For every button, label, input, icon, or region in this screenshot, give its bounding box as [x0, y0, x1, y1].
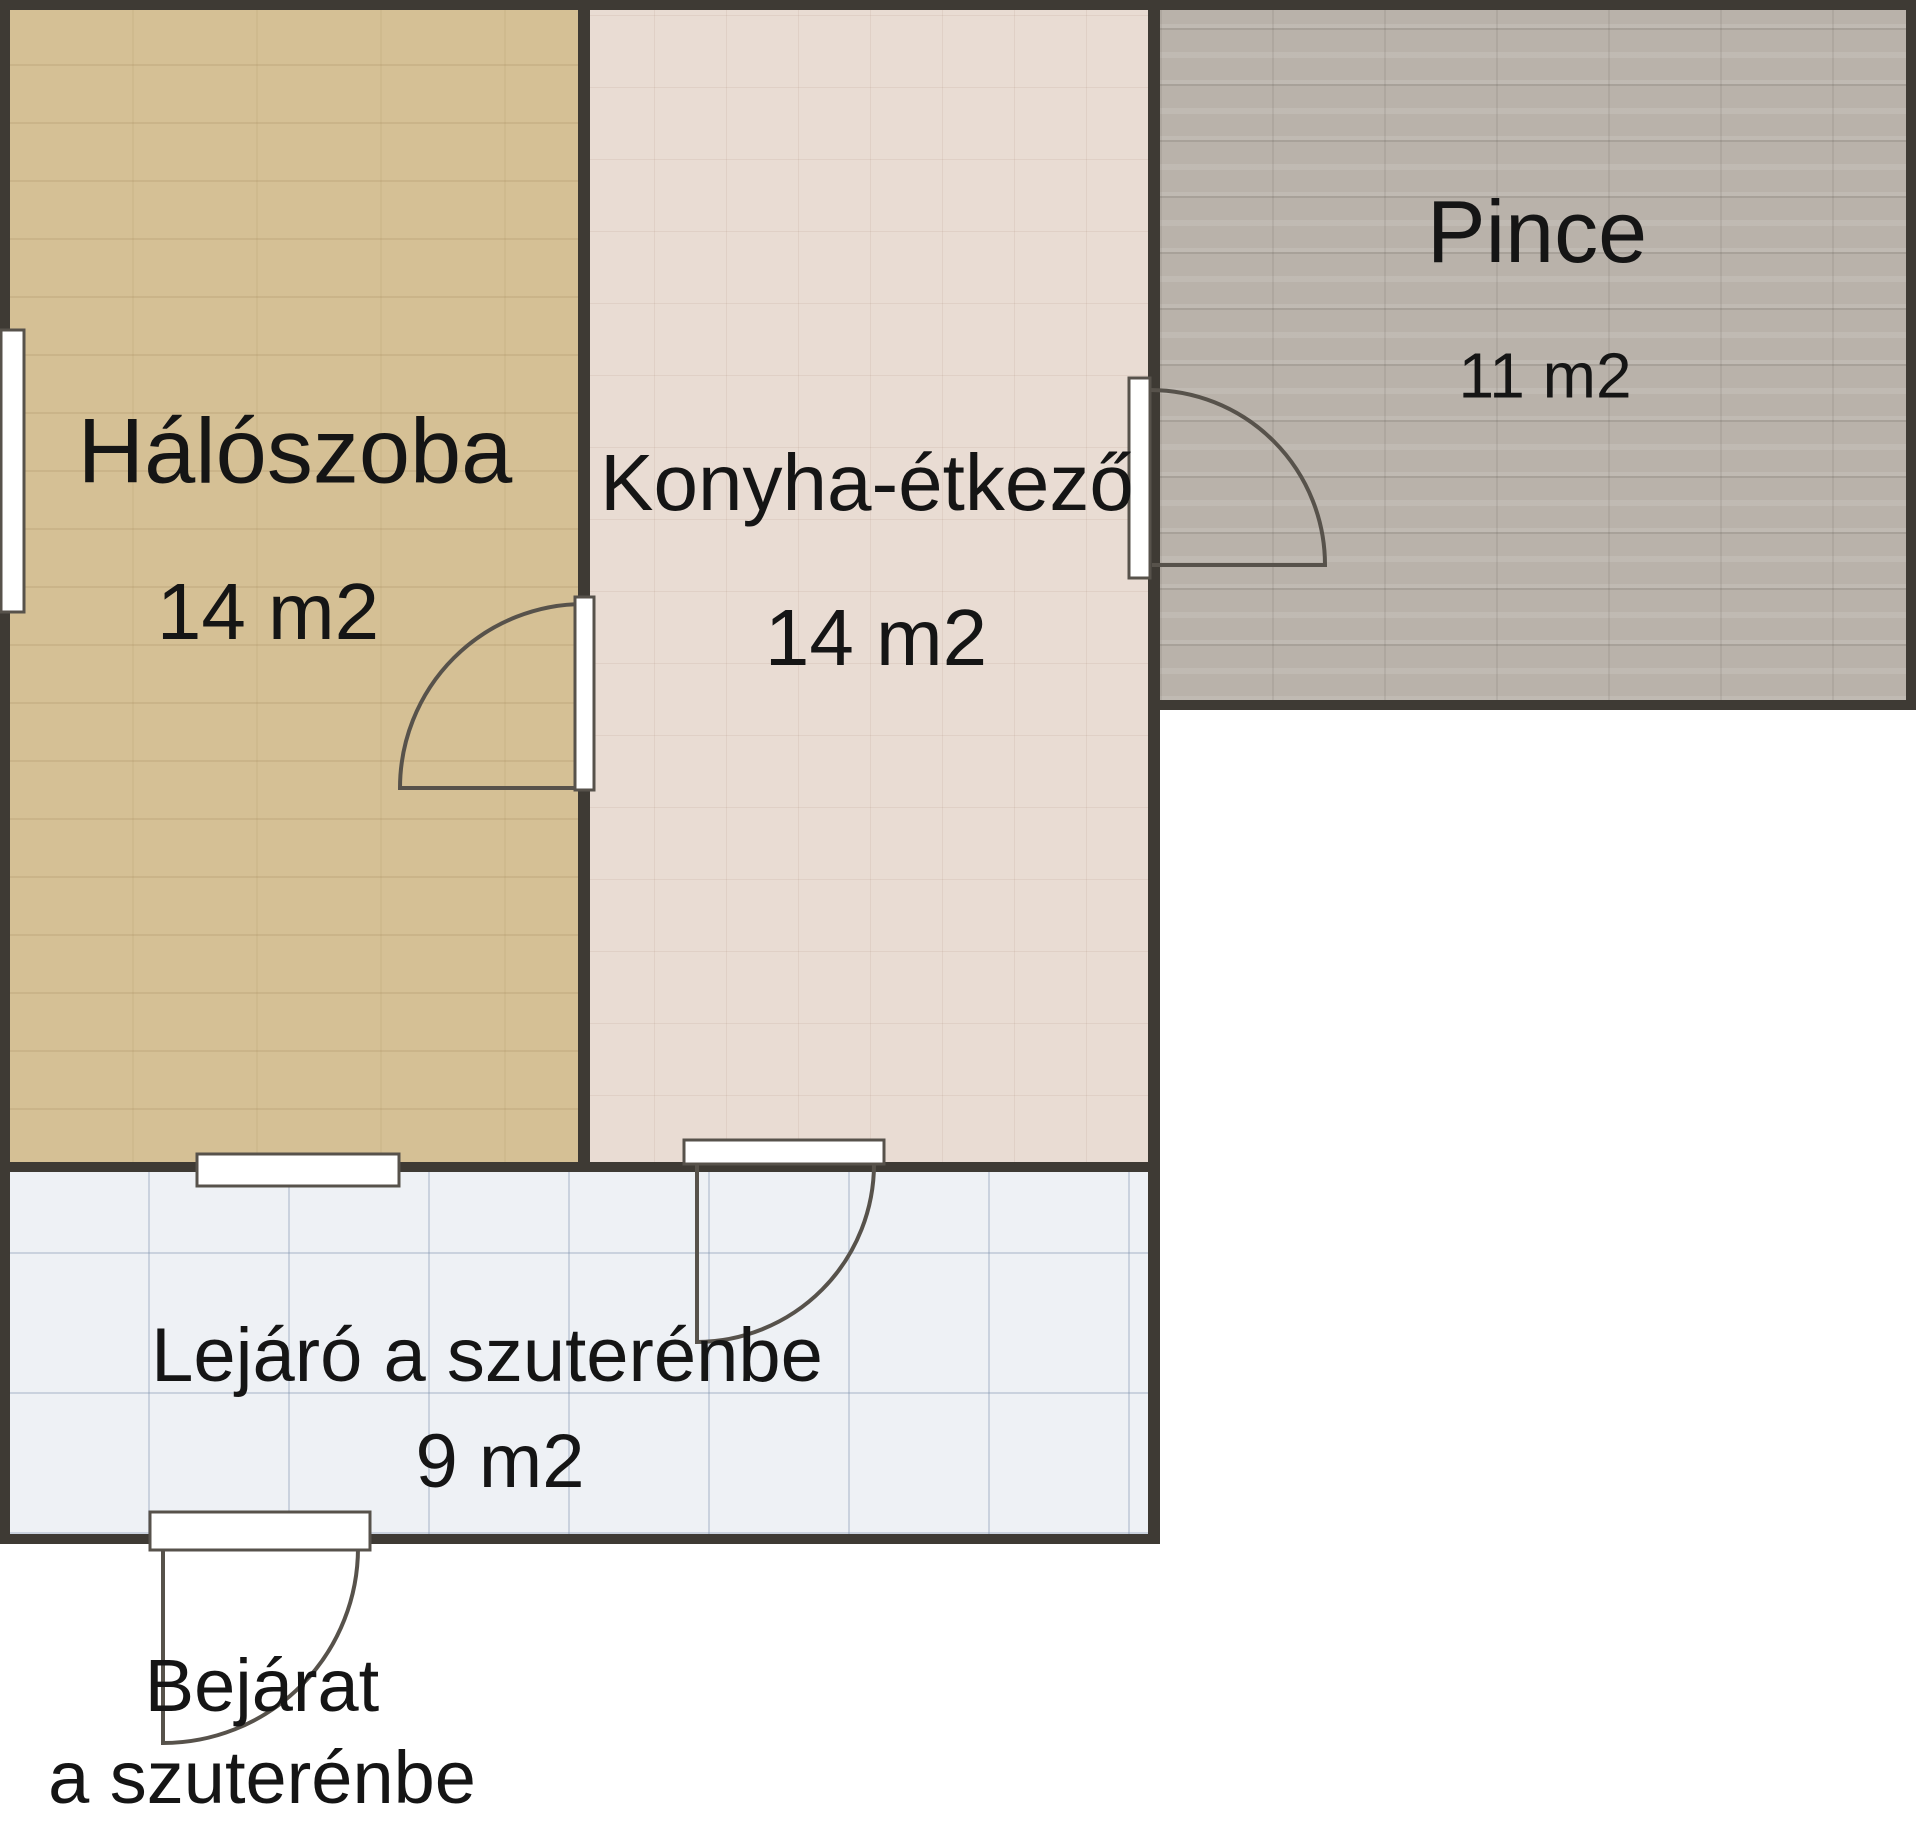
door-swing-icon-bedroom	[400, 604, 584, 788]
room-label-stairwell: Lejáró a szuterénbe	[151, 1316, 823, 1396]
door-leaf-icon-stairwell	[684, 1140, 884, 1164]
room-label-cellar: Pince	[1427, 186, 1647, 278]
door-leaf-icon-entrance	[150, 1512, 370, 1550]
room-area-bedroom: 14 m2	[157, 570, 379, 654]
room-label-kitchen: Konyha-étkező	[600, 441, 1134, 525]
entrance-caption: Bejárat a szuterénbe	[48, 1640, 476, 1821]
window-icon-bedroom-bottom	[197, 1154, 399, 1186]
window-icon-bedroom-left	[1, 330, 24, 612]
room-area-stairwell: 9 m2	[416, 1422, 585, 1502]
door-swing-icon-cellar	[1150, 390, 1325, 565]
entrance-caption-line2: a szuterénbe	[48, 1732, 476, 1821]
door-leaf-icon-bedroom	[575, 597, 594, 790]
room-area-kitchen: 14 m2	[765, 596, 987, 680]
floor-plan: Hálószoba 14 m2 Konyha-étkező 14 m2 Pinc…	[0, 0, 1920, 1821]
room-label-bedroom: Hálószoba	[78, 404, 513, 501]
entrance-caption-line1: Bejárat	[48, 1640, 476, 1732]
room-area-cellar: 11 m2	[1458, 342, 1631, 409]
